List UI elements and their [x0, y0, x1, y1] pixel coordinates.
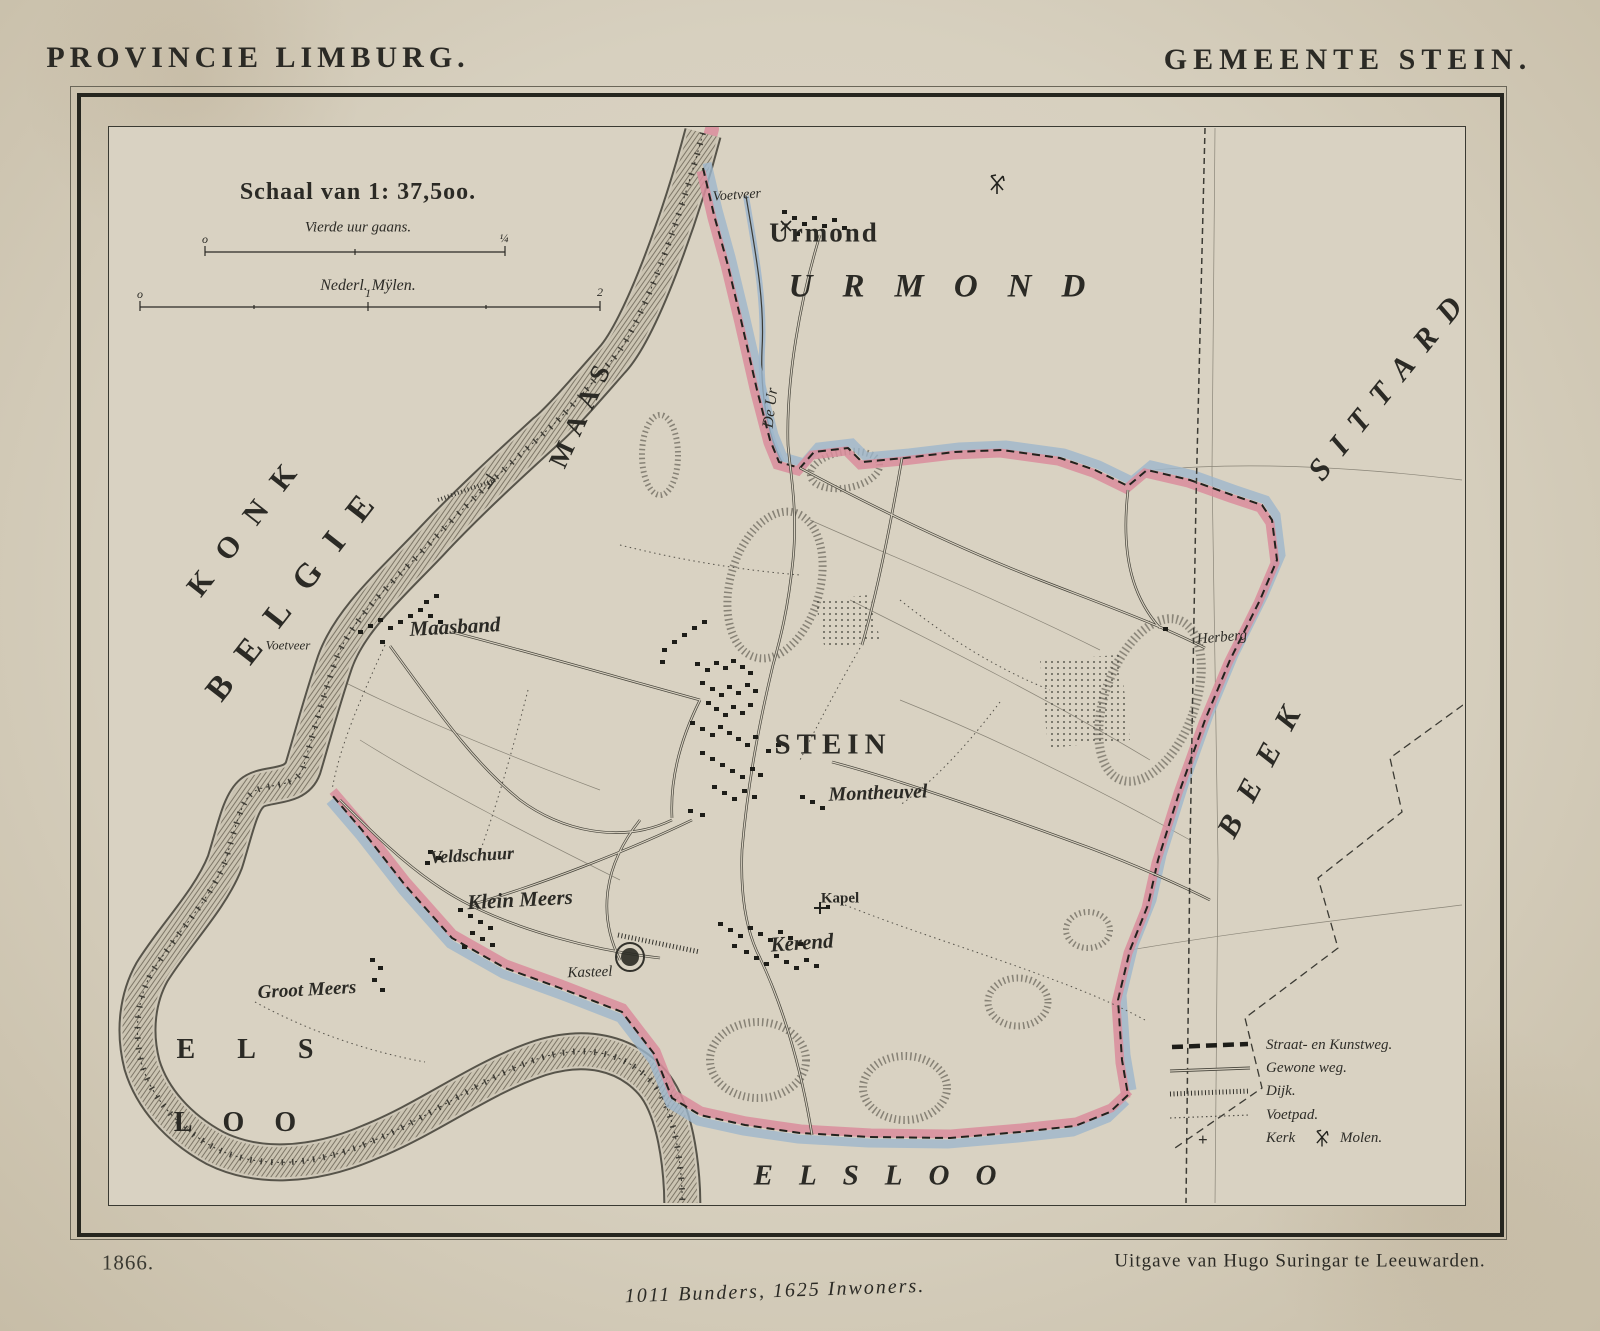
legend-item-gewoneweg: Gewone weg.	[1266, 1060, 1347, 1077]
label-voetveer-west: Voetveer	[266, 639, 311, 652]
legend-kerk-plus: +	[1198, 1130, 1208, 1150]
legend-item-molen: Molen.	[1340, 1130, 1382, 1147]
label-montheuvel: Montheuvel	[828, 781, 928, 804]
scale-bar2-end: 2	[597, 286, 603, 298]
label-groot-meers: Groot Meers	[257, 978, 357, 1002]
scale-bar2-start: o	[137, 288, 143, 300]
label-maasband: Maasband	[409, 614, 501, 640]
dike-lines	[438, 474, 700, 952]
label-klein-meers: Klein Meers	[467, 887, 574, 913]
hill-hachures	[642, 415, 1221, 1120]
scale-heading: Schaal van 1: 37,5oo.	[240, 180, 476, 204]
label-stein: STEIN	[774, 731, 891, 760]
stipple-areas	[815, 595, 1130, 748]
footpaths	[255, 545, 1145, 1062]
label-veldschuur: Veldschuur	[430, 844, 515, 866]
label-kasteel: Kasteel	[567, 965, 612, 982]
title-province: PROVINCIE LIMBURG.	[46, 43, 469, 73]
legend-item-voetpad: Voetpad.	[1266, 1107, 1318, 1124]
title-gemeente: GEMEENTE STEIN.	[1164, 45, 1532, 75]
legend-item-dijk: Dijk.	[1266, 1083, 1296, 1100]
legend-item-kerk: Kerk	[1266, 1130, 1295, 1147]
east-road	[1186, 128, 1205, 1204]
label-loo-region: LOO	[174, 1109, 326, 1137]
municipal-boundary	[330, 163, 1281, 1144]
label-urmond-village: Urmond	[769, 220, 879, 247]
publisher-imprint: Uitgave van Hugo Suringar te Leeuwarden.	[1114, 1252, 1485, 1271]
label-kerend: Kerend	[770, 930, 834, 955]
label-els-region: ELS	[177, 1036, 356, 1064]
label-kapel: Kapel	[821, 892, 859, 907]
label-elsloo-region: ELSLOO	[754, 1162, 1023, 1191]
beek-border-dashes	[1175, 705, 1463, 1148]
legend-item-straatweg: Straat- en Kunstweg.	[1266, 1037, 1392, 1054]
scale-bar1-label: Vierde uur gaans.	[305, 221, 411, 236]
scale-bar1-end: ¼	[500, 232, 509, 244]
windmill-icon	[991, 175, 1004, 194]
scale-bar1-start: o	[202, 233, 208, 245]
label-urmond-region: URMOND	[789, 271, 1116, 304]
kasteel-site	[616, 943, 644, 971]
scale-bar2-mid: 1	[365, 287, 371, 299]
map-year: 1866.	[102, 1253, 154, 1274]
map-sheet: PROVINCIE LIMBURG. GEMEENTE STEIN. Schaa…	[0, 0, 1600, 1331]
